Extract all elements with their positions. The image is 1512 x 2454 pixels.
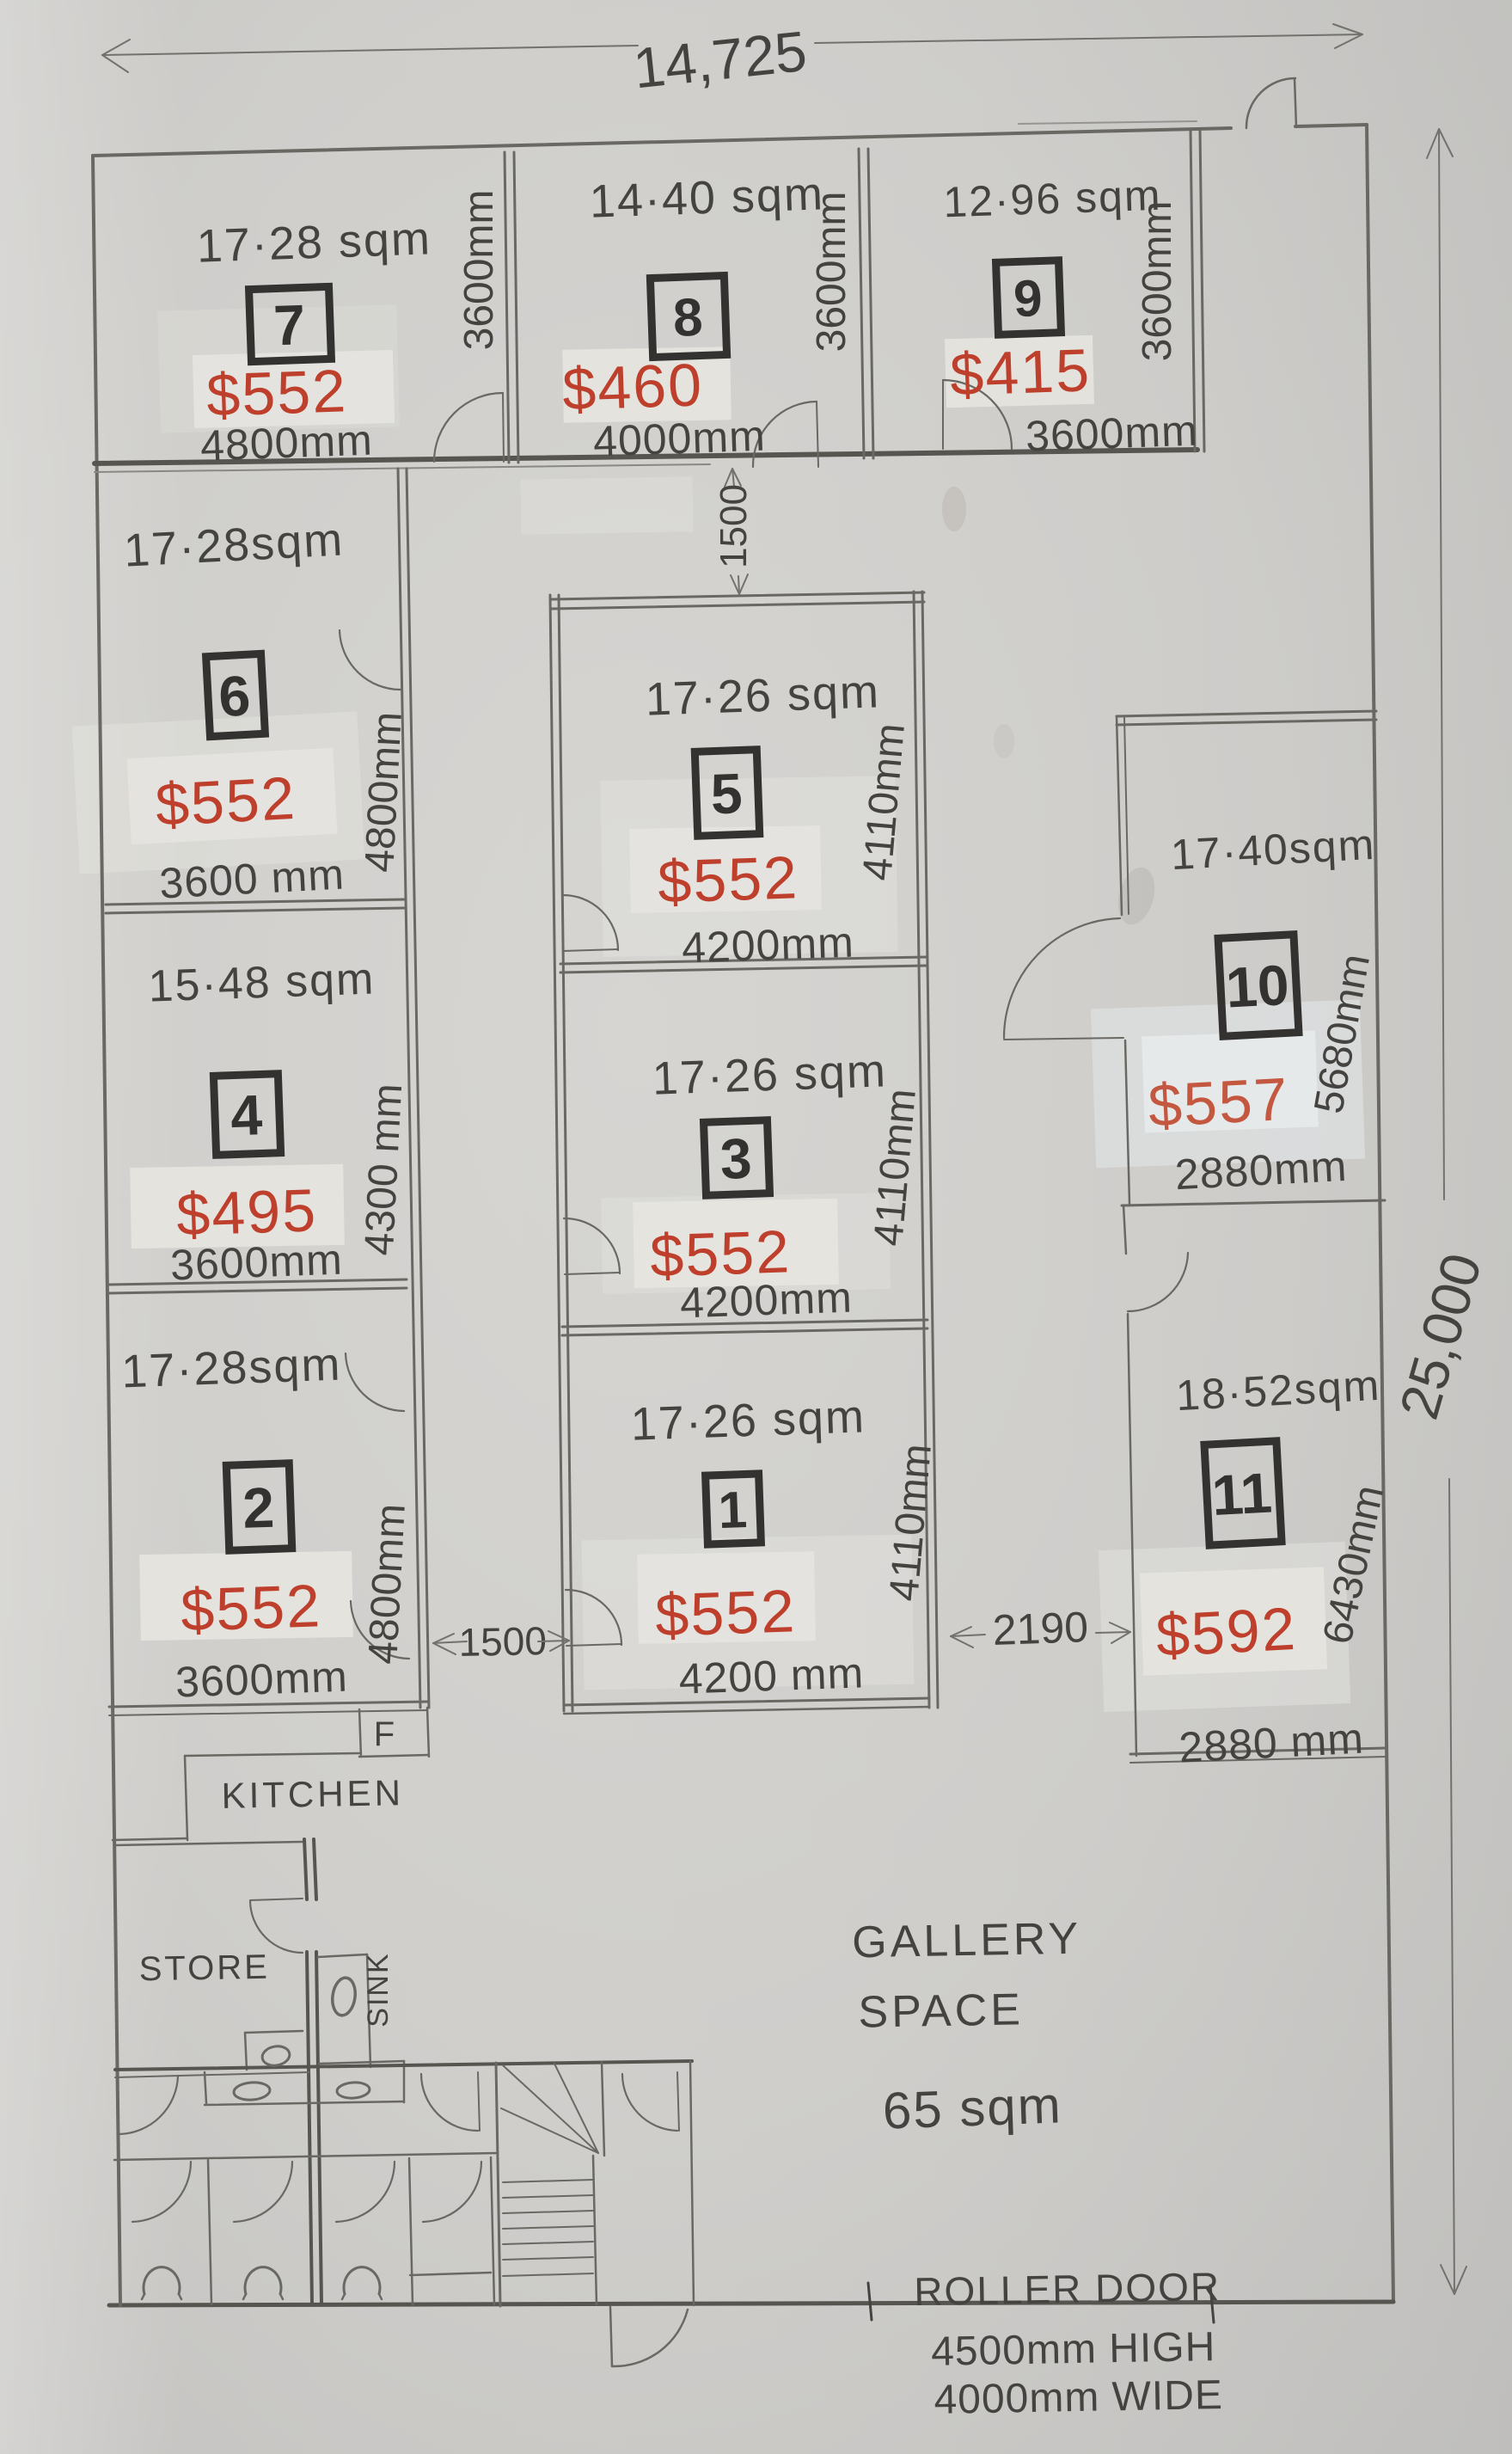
svg-text:$460: $460 [561, 351, 704, 423]
svg-text:17·26 sqm: 17·26 sqm [645, 666, 881, 725]
svg-text:4: 4 [230, 1083, 264, 1147]
svg-text:1500: 1500 [713, 484, 755, 568]
svg-text:4000mm: 4000mm [592, 412, 766, 466]
svg-text:GALLERY: GALLERY [852, 1914, 1082, 1968]
svg-text:7: 7 [272, 292, 306, 357]
svg-text:3: 3 [719, 1126, 753, 1191]
svg-text:3600mm: 3600mm [456, 190, 502, 351]
svg-text:4500mm HIGH: 4500mm HIGH [931, 2324, 1216, 2375]
svg-text:4800mm: 4800mm [357, 711, 411, 874]
svg-text:F: F [374, 1715, 395, 1753]
svg-text:SINK: SINK [362, 1952, 395, 2027]
svg-text:12·96 sqm: 12·96 sqm [942, 171, 1162, 227]
svg-text:3600mm: 3600mm [174, 1653, 348, 1707]
svg-text:4800mm: 4800mm [360, 1503, 414, 1666]
svg-text:3600mm: 3600mm [1135, 201, 1180, 362]
svg-text:4200 mm: 4200 mm [678, 1648, 865, 1702]
svg-text:2190: 2190 [992, 1603, 1089, 1654]
svg-text:17·28sqm: 17·28sqm [120, 1339, 342, 1398]
svg-text:3600mm: 3600mm [1025, 407, 1198, 461]
svg-text:4200mm: 4200mm [681, 918, 854, 972]
svg-text:6: 6 [217, 663, 253, 728]
svg-text:$552: $552 [657, 844, 799, 916]
svg-text:KITCHEN: KITCHEN [221, 1772, 404, 1816]
svg-text:$557: $557 [1147, 1065, 1291, 1139]
svg-text:9: 9 [1013, 269, 1044, 328]
svg-text:3600mm: 3600mm [809, 192, 854, 353]
svg-text:2880mm: 2880mm [1174, 1142, 1349, 1199]
svg-text:4200mm: 4200mm [679, 1273, 853, 1328]
svg-text:65 sqm: 65 sqm [882, 2076, 1063, 2139]
svg-text:17·28 sqm: 17·28 sqm [196, 212, 432, 272]
svg-text:17·26 sqm: 17·26 sqm [630, 1390, 866, 1450]
svg-text:14·40 sqm: 14·40 sqm [589, 168, 825, 227]
svg-text:$552: $552 [180, 1572, 322, 1644]
svg-text:STORE: STORE [138, 1948, 270, 1989]
svg-text:11: 11 [1210, 1461, 1274, 1528]
svg-text:17·26 sqm: 17·26 sqm [652, 1045, 888, 1104]
svg-text:$592: $592 [1154, 1595, 1299, 1669]
svg-text:10: 10 [1224, 953, 1290, 1020]
svg-text:2: 2 [242, 1475, 275, 1540]
svg-text:ROLLER DOOR: ROLLER DOOR [914, 2264, 1221, 2314]
svg-text:$552: $552 [654, 1577, 797, 1649]
svg-text:15·48 sqm: 15·48 sqm [148, 954, 376, 1011]
svg-text:4300 mm: 4300 mm [357, 1083, 411, 1257]
svg-text:$552: $552 [154, 764, 298, 838]
svg-text:4000mm WIDE: 4000mm WIDE [934, 2372, 1223, 2423]
svg-text:3600mm: 3600mm [169, 1236, 343, 1290]
svg-text:2880 mm: 2880 mm [1178, 1714, 1365, 1771]
svg-text:$415: $415 [949, 336, 1092, 408]
svg-text:8: 8 [672, 288, 704, 348]
svg-text:1500: 1500 [458, 1618, 547, 1665]
svg-text:4800mm: 4800mm [199, 416, 373, 470]
svg-text:5: 5 [710, 761, 744, 825]
svg-text:3600 mm: 3600 mm [158, 850, 346, 907]
svg-text:SPACE: SPACE [858, 1985, 1024, 2037]
svg-text:1: 1 [717, 1481, 748, 1539]
